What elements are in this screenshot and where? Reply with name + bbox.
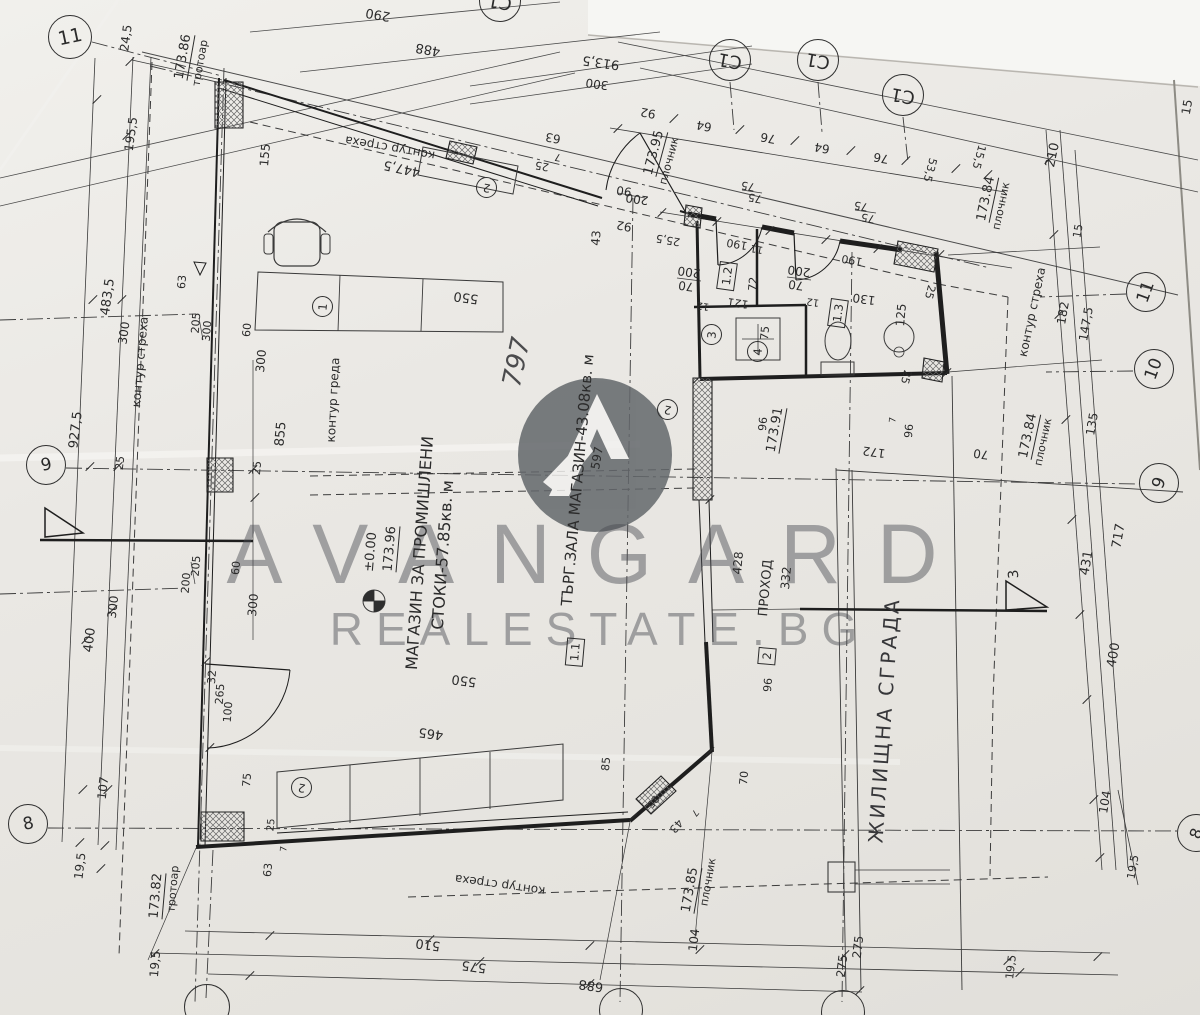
dimension-tick (669, 114, 678, 123)
dimension-tick (901, 156, 910, 165)
dimension-tick (705, 747, 714, 756)
position-tag: 1 (312, 296, 333, 317)
dimension-tick (705, 495, 714, 504)
axis-bubble: 9 (1139, 463, 1179, 503)
dimension-tick (205, 743, 214, 752)
dimension-tick (1044, 155, 1053, 164)
axis-bubble: 9 (26, 445, 66, 485)
dimension-tick (125, 57, 134, 66)
position-tag: 3 (701, 324, 722, 345)
dimension-tick (1003, 956, 1012, 965)
dimension-tick (1067, 515, 1076, 524)
axis-bubble (821, 990, 865, 1015)
dimension-tick (873, 244, 882, 253)
position-tag: 2 (476, 177, 497, 198)
dimension-tick (250, 493, 259, 502)
axis-bubble-label: 11 (1133, 278, 1159, 305)
position-tag-label: 2 (297, 780, 307, 795)
dimension-tick (695, 945, 704, 954)
dimension-tick (108, 605, 117, 614)
dimension-tick (150, 949, 159, 958)
dimension-tick (846, 146, 855, 155)
axis-bubble-label: 8 (21, 813, 36, 835)
position-tag: 4 (747, 341, 768, 362)
dimension-tick (765, 226, 774, 235)
position-tag-label: 2 (482, 180, 492, 195)
dimension-tick (1054, 310, 1063, 319)
dimension-tick (712, 217, 721, 226)
dimension-tick (1082, 695, 1091, 704)
axis-bubble (184, 984, 230, 1015)
axis-bubble-label: С1 (486, 0, 513, 13)
dimension-tick (983, 170, 992, 179)
dimension-tick (1049, 230, 1058, 239)
dimension-tick (113, 462, 122, 471)
dimension-tick (1061, 415, 1070, 424)
dimension-tick (628, 813, 637, 822)
room-number-box: 1.3 (827, 298, 849, 329)
axis-bubble: 10 (1134, 349, 1174, 389)
dimension-tick (585, 941, 594, 950)
axis-bubble-label: 11 (56, 24, 84, 51)
dimension-tick (96, 864, 105, 873)
dimension-tick (265, 931, 274, 940)
dimension-tick (1015, 968, 1024, 977)
dimension-tick (821, 235, 830, 244)
position-tag-label: 4 (750, 347, 765, 356)
dimension-tick (657, 208, 666, 217)
room-number-box: 2 (757, 647, 776, 666)
axis-bubble-label: 8 (1185, 825, 1200, 841)
position-tag: 2 (291, 777, 312, 798)
dimension-tick (475, 957, 484, 966)
dimension-tick (81, 635, 90, 644)
dimension-tick (122, 131, 131, 140)
axis-bubble: С1 (882, 74, 924, 116)
position-tag-label: 2 (663, 402, 673, 417)
axis-bubble (599, 988, 643, 1015)
dimension-tick (790, 136, 799, 145)
position-tag-label: 1 (315, 302, 330, 311)
axis-bubble-label: С1 (716, 48, 743, 73)
dimension-tick (248, 465, 257, 474)
position-tag-label: 3 (704, 330, 719, 339)
dimension-tick (100, 841, 109, 850)
marks-layer: 1198С1С1С1С11110981222341.21.321.1 (0, 0, 1200, 1015)
position-tag: 2 (657, 399, 678, 420)
dimension-tick (1095, 853, 1104, 862)
dimension-tick (88, 295, 97, 304)
axis-bubble: 11 (48, 15, 92, 59)
dimension-tick (1089, 795, 1098, 804)
dimension-tick (942, 368, 951, 377)
axis-bubble-label: 9 (39, 454, 54, 476)
dimension-tick (840, 950, 849, 959)
dimension-tick (613, 124, 622, 133)
dimension-tick (692, 375, 701, 384)
dimension-tick (245, 971, 254, 980)
dimension-tick (585, 979, 594, 988)
dimension-tick (1075, 610, 1084, 619)
axis-bubble: С1 (797, 39, 839, 81)
dimension-tick (117, 295, 126, 304)
dimension-tick (85, 462, 94, 471)
axis-bubble: 8 (1177, 814, 1200, 852)
dimension-tick (951, 164, 960, 173)
dimension-tick (201, 657, 210, 666)
dimension-tick (75, 838, 84, 847)
floor-plan-photo: AVANGARD REALESTATE.BG 290488913,5300926… (0, 0, 1200, 1015)
axis-bubble-label: 10 (1141, 355, 1167, 382)
axis-bubble: С1 (709, 39, 751, 81)
dimension-tick (855, 986, 864, 995)
axis-bubble-label: С1 (889, 83, 916, 108)
axis-bubble: 8 (8, 804, 48, 844)
room-number-box: 1.1 (565, 637, 585, 667)
dimension-tick (92, 95, 101, 104)
dimension-tick (735, 125, 744, 134)
axis-bubble: С1 (479, 0, 521, 22)
room-number-box: 1.2 (716, 261, 738, 292)
axis-bubble-label: С1 (804, 48, 831, 73)
axis-bubble-label: 9 (1148, 474, 1170, 491)
dimension-tick (425, 935, 434, 944)
dimension-tick (103, 785, 112, 794)
dimension-tick (935, 250, 944, 259)
axis-bubble: 11 (1126, 272, 1166, 312)
dimension-tick (78, 785, 87, 794)
dimension-tick (1093, 952, 1102, 961)
